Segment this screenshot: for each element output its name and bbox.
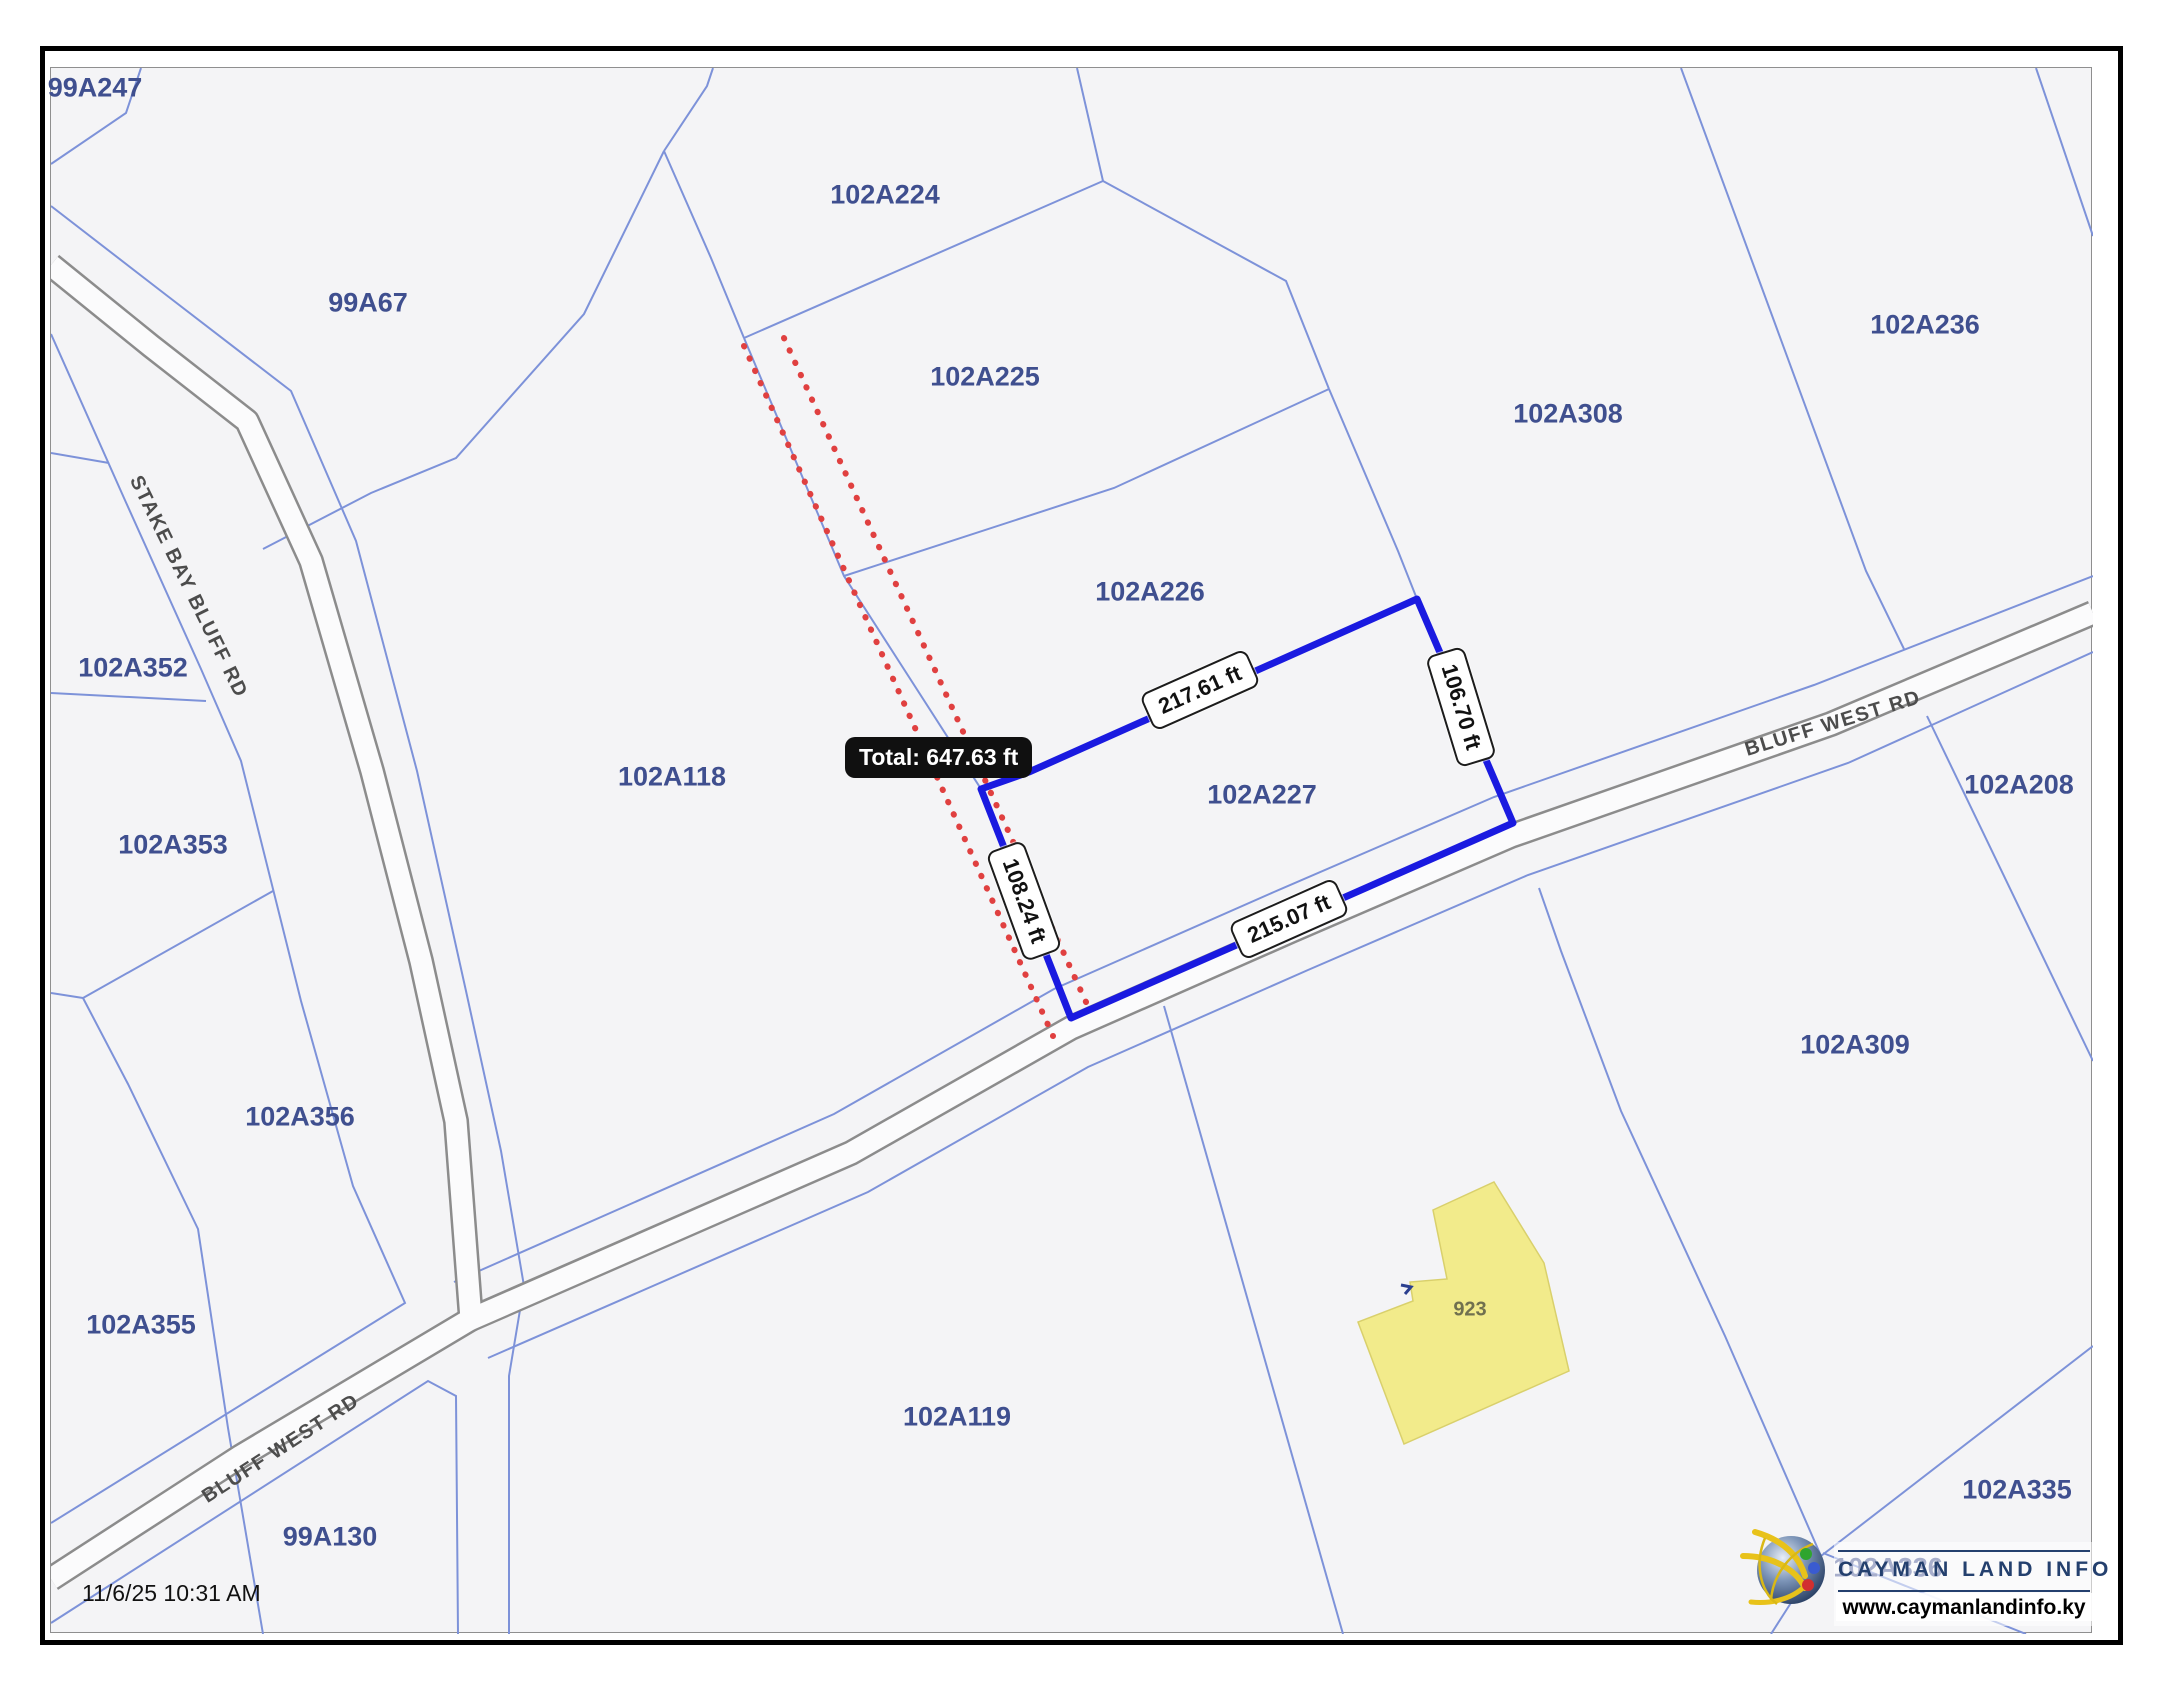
map-export-page: 99A247102A22499A67102A236102A225102A3081… [0,0,2168,1700]
map-canvas [51,68,2093,1634]
building-point-marker [1401,1285,1411,1294]
globe-logo-icon [1725,1512,1845,1632]
brand-watermark: CAYMAN LAND INFO www.caymanlandinfo.ky [1826,1536,2098,1628]
brand-url: www.caymanlandinfo.ky [1838,1596,2090,1620]
building-number-label: 923 [1453,1299,1486,1322]
brand-rule-top [1838,1550,2090,1552]
brand-rule-bottom [1838,1590,2090,1592]
map-viewport[interactable] [50,67,2092,1633]
map-timestamp: 11/6/25 10:31 AM [82,1580,261,1607]
measure-total-tooltip: Total: 647.63 ft [845,737,1032,778]
brand-title: CAYMAN LAND INFO [1838,1558,2090,1582]
